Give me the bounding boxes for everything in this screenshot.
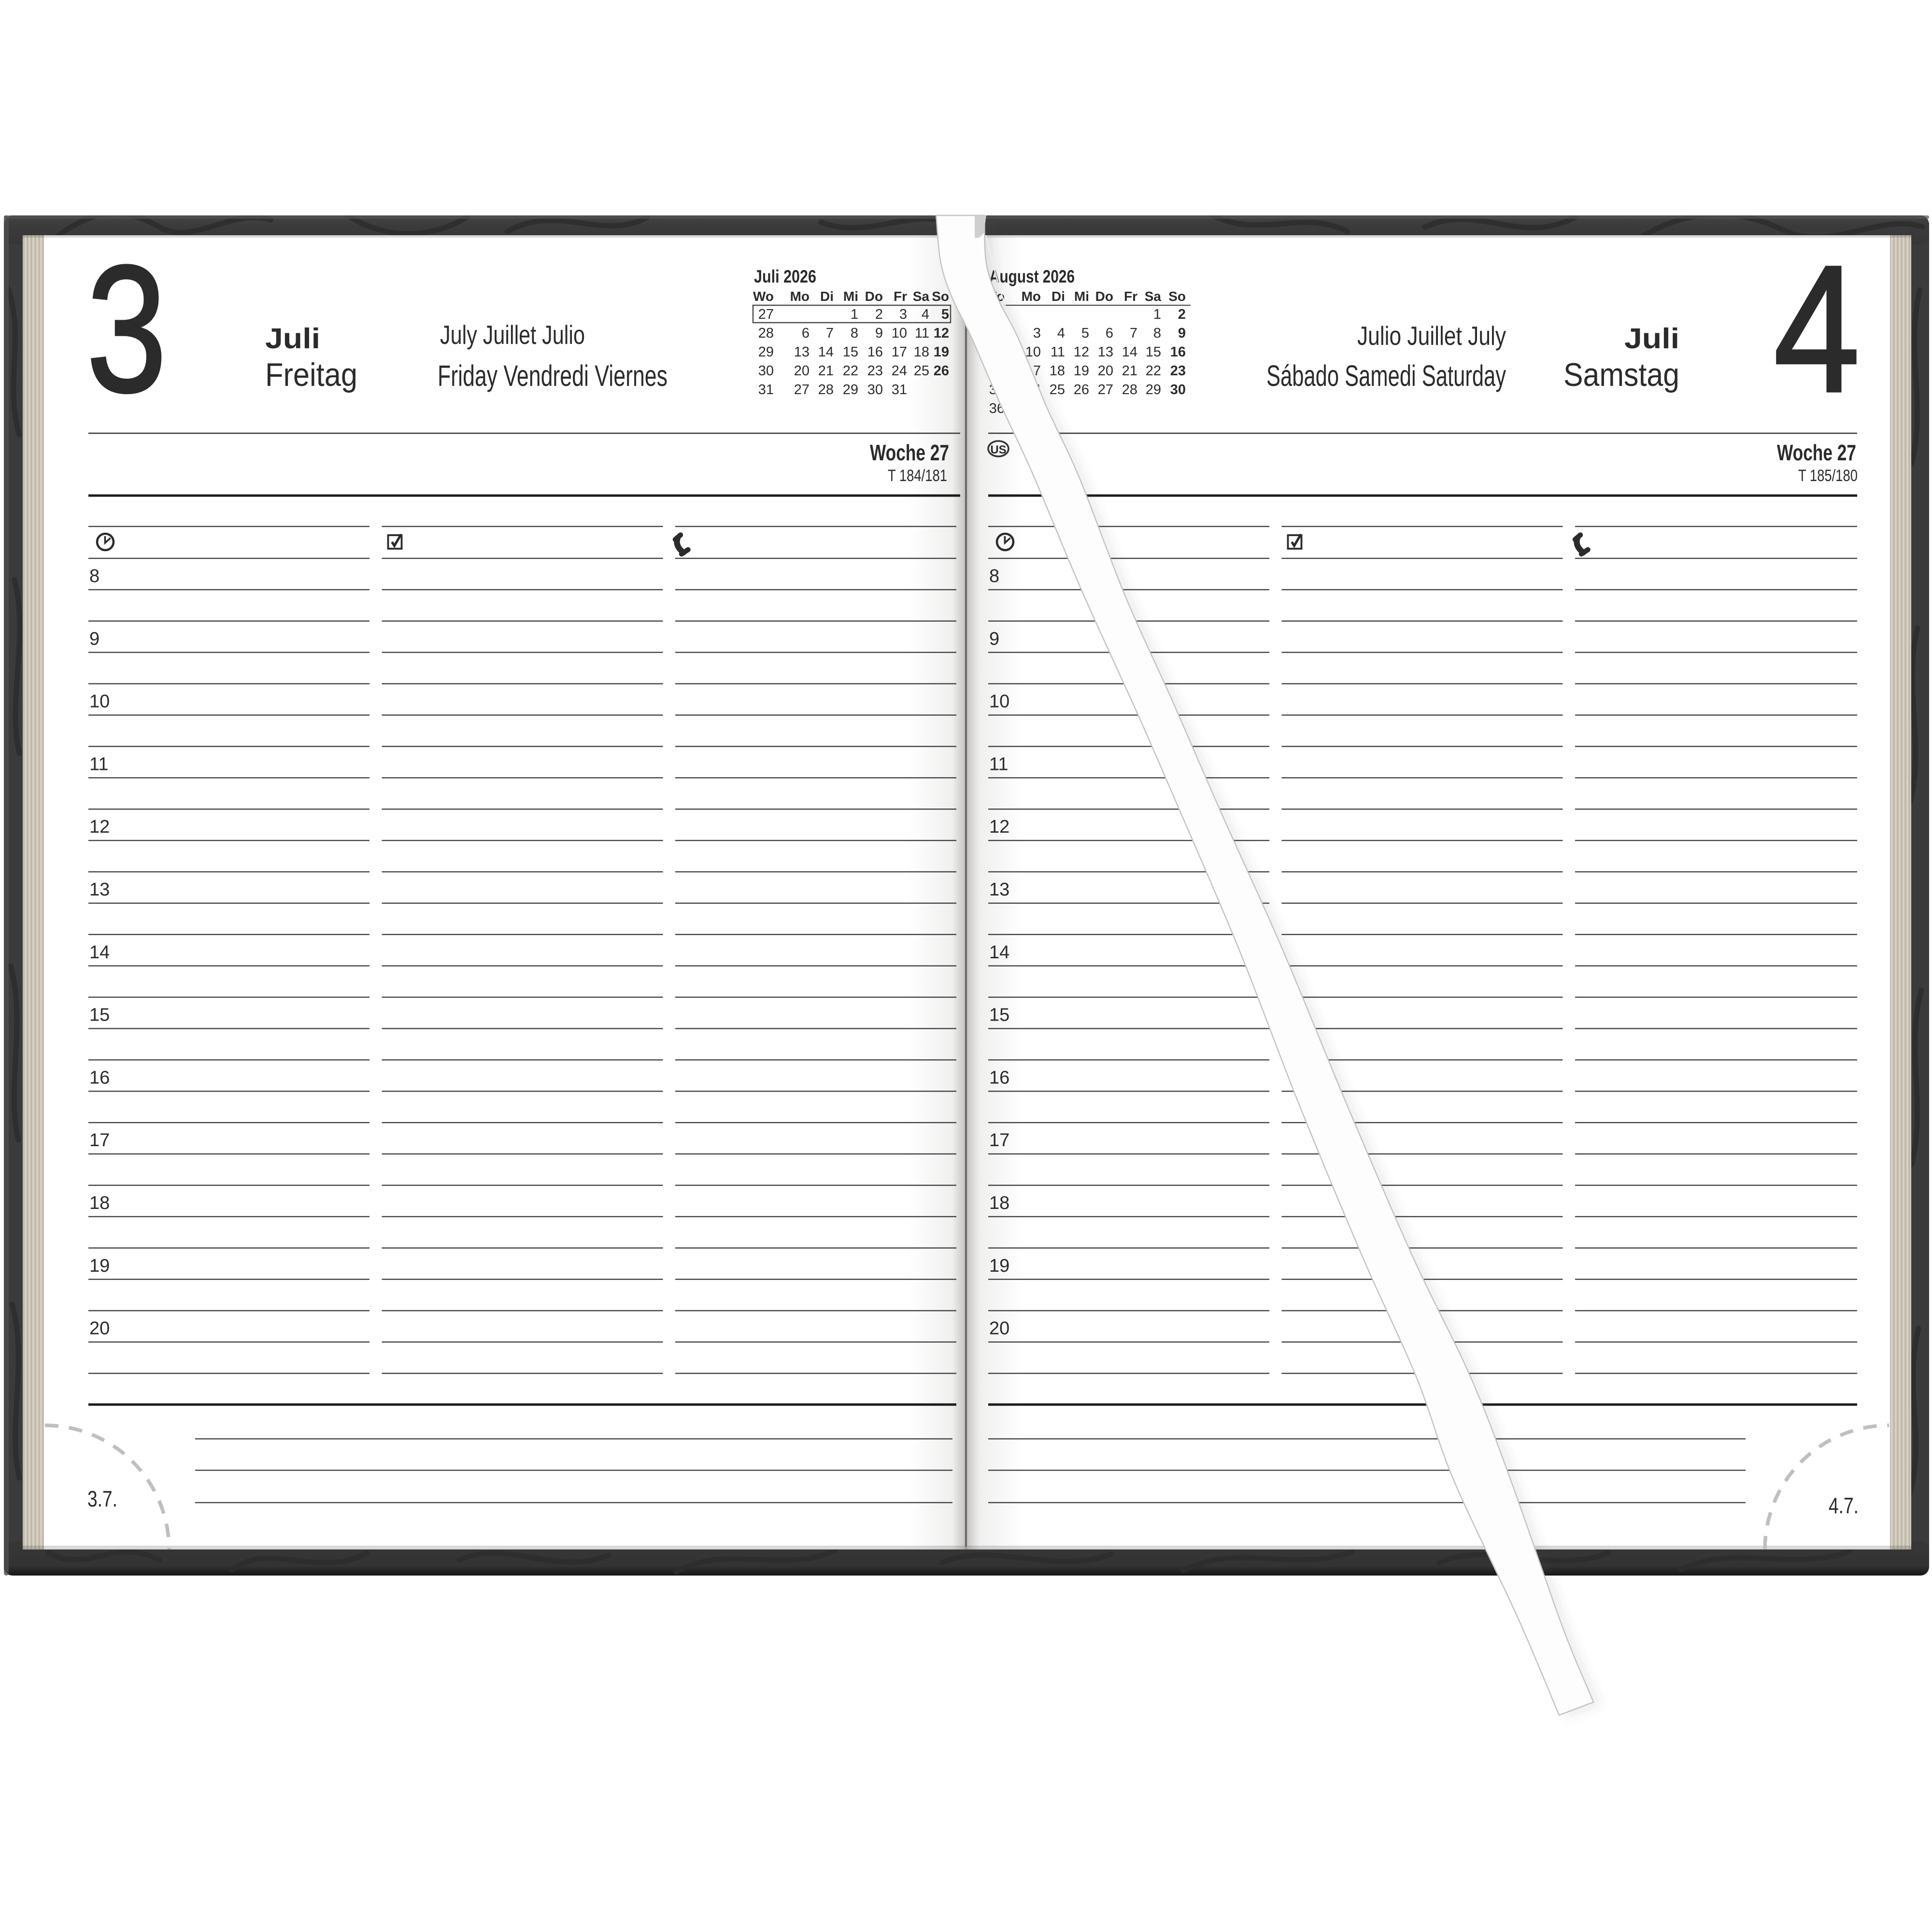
svg-text:3: 3	[86, 227, 167, 430]
svg-text:3: 3	[899, 307, 907, 322]
svg-text:22: 22	[843, 363, 858, 379]
svg-text:Fr: Fr	[1124, 289, 1137, 304]
svg-text:15: 15	[843, 344, 858, 360]
svg-text:Juli: Juli	[265, 323, 320, 355]
svg-text:Juli: Juli	[1624, 323, 1679, 355]
svg-text:21: 21	[818, 363, 834, 379]
svg-text:July Juillet Julio: July Juillet Julio	[440, 320, 585, 350]
svg-text:15: 15	[1146, 344, 1161, 360]
svg-text:7: 7	[1130, 326, 1137, 341]
svg-text:14: 14	[1122, 344, 1137, 360]
svg-text:Sa: Sa	[1145, 289, 1162, 304]
svg-text:T 185/180: T 185/180	[1798, 467, 1858, 485]
svg-text:15: 15	[89, 1005, 110, 1025]
svg-text:24: 24	[892, 363, 907, 379]
svg-text:10: 10	[892, 326, 907, 341]
svg-text:11: 11	[1051, 344, 1065, 360]
svg-text:12: 12	[934, 326, 949, 341]
svg-text:Di: Di	[1051, 289, 1065, 304]
svg-text:15: 15	[989, 1005, 1009, 1025]
svg-text:Mi: Mi	[1074, 289, 1089, 304]
svg-text:3: 3	[1033, 326, 1041, 341]
svg-text:1: 1	[1153, 307, 1161, 322]
svg-text:17: 17	[89, 1130, 110, 1151]
svg-text:6: 6	[802, 326, 810, 341]
svg-text:25: 25	[914, 363, 929, 379]
svg-text:9: 9	[89, 629, 99, 649]
svg-text:18: 18	[89, 1193, 110, 1213]
svg-text:US: US	[990, 443, 1006, 456]
svg-text:21: 21	[1122, 363, 1137, 379]
svg-text:17: 17	[989, 1130, 1009, 1151]
svg-text:30: 30	[758, 363, 774, 379]
svg-text:27: 27	[794, 382, 810, 398]
svg-text:28: 28	[1122, 382, 1137, 398]
svg-text:31: 31	[892, 382, 907, 398]
svg-text:14: 14	[989, 942, 1009, 963]
svg-text:14: 14	[89, 942, 110, 963]
svg-text:Mi: Mi	[843, 289, 858, 304]
svg-text:26: 26	[1074, 382, 1089, 398]
svg-text:16: 16	[1170, 344, 1186, 360]
svg-text:29: 29	[1146, 382, 1161, 398]
svg-text:13: 13	[794, 344, 810, 360]
svg-text:9: 9	[989, 629, 999, 649]
svg-text:16: 16	[89, 1067, 110, 1088]
svg-text:Sábado Samedi Saturday: Sábado Samedi Saturday	[1266, 359, 1506, 392]
svg-text:18: 18	[989, 1193, 1009, 1213]
svg-text:Mo: Mo	[1022, 289, 1041, 304]
svg-text:25: 25	[1050, 382, 1065, 398]
svg-text:Mo: Mo	[790, 289, 810, 304]
svg-text:20: 20	[794, 363, 810, 379]
svg-text:4: 4	[1057, 326, 1065, 341]
svg-text:16: 16	[989, 1067, 1009, 1088]
svg-text:3.7.: 3.7.	[87, 1486, 117, 1511]
svg-text:2: 2	[875, 307, 883, 322]
svg-text:Di: Di	[820, 289, 834, 304]
svg-text:22: 22	[1146, 363, 1161, 379]
svg-text:28: 28	[758, 326, 774, 341]
svg-text:1: 1	[851, 307, 858, 322]
svg-text:20: 20	[989, 1319, 1009, 1339]
svg-text:T 184/181: T 184/181	[888, 467, 947, 485]
svg-text:10: 10	[989, 692, 1009, 712]
svg-text:11: 11	[989, 754, 1008, 774]
svg-text:20: 20	[1098, 363, 1113, 379]
svg-text:8: 8	[989, 566, 999, 586]
svg-text:30: 30	[1170, 382, 1186, 398]
svg-text:19: 19	[989, 1256, 1009, 1276]
svg-text:Woche 27: Woche 27	[870, 440, 949, 465]
svg-text:9: 9	[875, 326, 883, 341]
svg-text:Fr: Fr	[894, 289, 907, 304]
svg-text:19: 19	[934, 344, 949, 360]
svg-text:31: 31	[758, 382, 774, 398]
svg-text:4.7.: 4.7.	[1829, 1493, 1859, 1518]
svg-text:12: 12	[989, 817, 1009, 837]
svg-text:27: 27	[758, 307, 774, 322]
svg-text:29: 29	[843, 382, 858, 398]
svg-text:12: 12	[89, 817, 110, 837]
svg-text:13: 13	[89, 880, 110, 900]
svg-text:8: 8	[89, 566, 99, 586]
svg-text:Samstag: Samstag	[1563, 356, 1679, 393]
svg-text:Woche 27: Woche 27	[1777, 440, 1856, 465]
svg-text:August 2026: August 2026	[989, 267, 1075, 286]
svg-text:12: 12	[1074, 344, 1089, 360]
svg-text:Sa: Sa	[913, 289, 930, 304]
svg-text:26: 26	[934, 363, 949, 379]
svg-text:7: 7	[826, 326, 834, 341]
svg-text:Julio Juillet July: Julio Juillet July	[1357, 321, 1506, 351]
svg-text:8: 8	[851, 326, 858, 341]
svg-text:29: 29	[758, 344, 774, 360]
svg-text:16: 16	[867, 344, 883, 360]
svg-text:19: 19	[89, 1256, 110, 1276]
svg-text:So: So	[1168, 289, 1186, 304]
svg-text:13: 13	[1098, 344, 1113, 360]
svg-text:19: 19	[1074, 363, 1089, 379]
svg-text:5: 5	[941, 307, 949, 322]
svg-text:2: 2	[1178, 307, 1186, 322]
svg-text:9: 9	[1178, 326, 1186, 341]
svg-text:30: 30	[867, 382, 883, 398]
svg-text:20: 20	[89, 1319, 110, 1339]
svg-text:11: 11	[915, 326, 929, 341]
svg-text:4: 4	[922, 307, 929, 322]
svg-text:18: 18	[1050, 363, 1065, 379]
svg-text:27: 27	[1098, 382, 1113, 398]
svg-text:13: 13	[989, 880, 1009, 900]
svg-text:28: 28	[818, 382, 834, 398]
svg-text:Juli 2026: Juli 2026	[754, 267, 816, 286]
svg-text:6: 6	[1106, 326, 1113, 341]
svg-text:5: 5	[1081, 326, 1089, 341]
svg-text:23: 23	[867, 363, 883, 379]
svg-text:Freitag: Freitag	[265, 356, 357, 393]
svg-text:23: 23	[1170, 363, 1186, 379]
svg-text:18: 18	[914, 344, 929, 360]
svg-text:8: 8	[1153, 326, 1161, 341]
svg-text:Wo: Wo	[753, 289, 774, 304]
svg-text:4: 4	[1774, 227, 1860, 429]
svg-text:Friday Vendredi Viernes: Friday Vendredi Viernes	[438, 359, 668, 392]
svg-text:17: 17	[892, 344, 907, 360]
svg-text:Do: Do	[1095, 289, 1113, 304]
svg-text:So: So	[932, 289, 949, 304]
svg-text:14: 14	[818, 344, 834, 360]
svg-text:11: 11	[89, 754, 108, 774]
svg-text:10: 10	[89, 692, 110, 712]
svg-text:Do: Do	[865, 289, 883, 304]
